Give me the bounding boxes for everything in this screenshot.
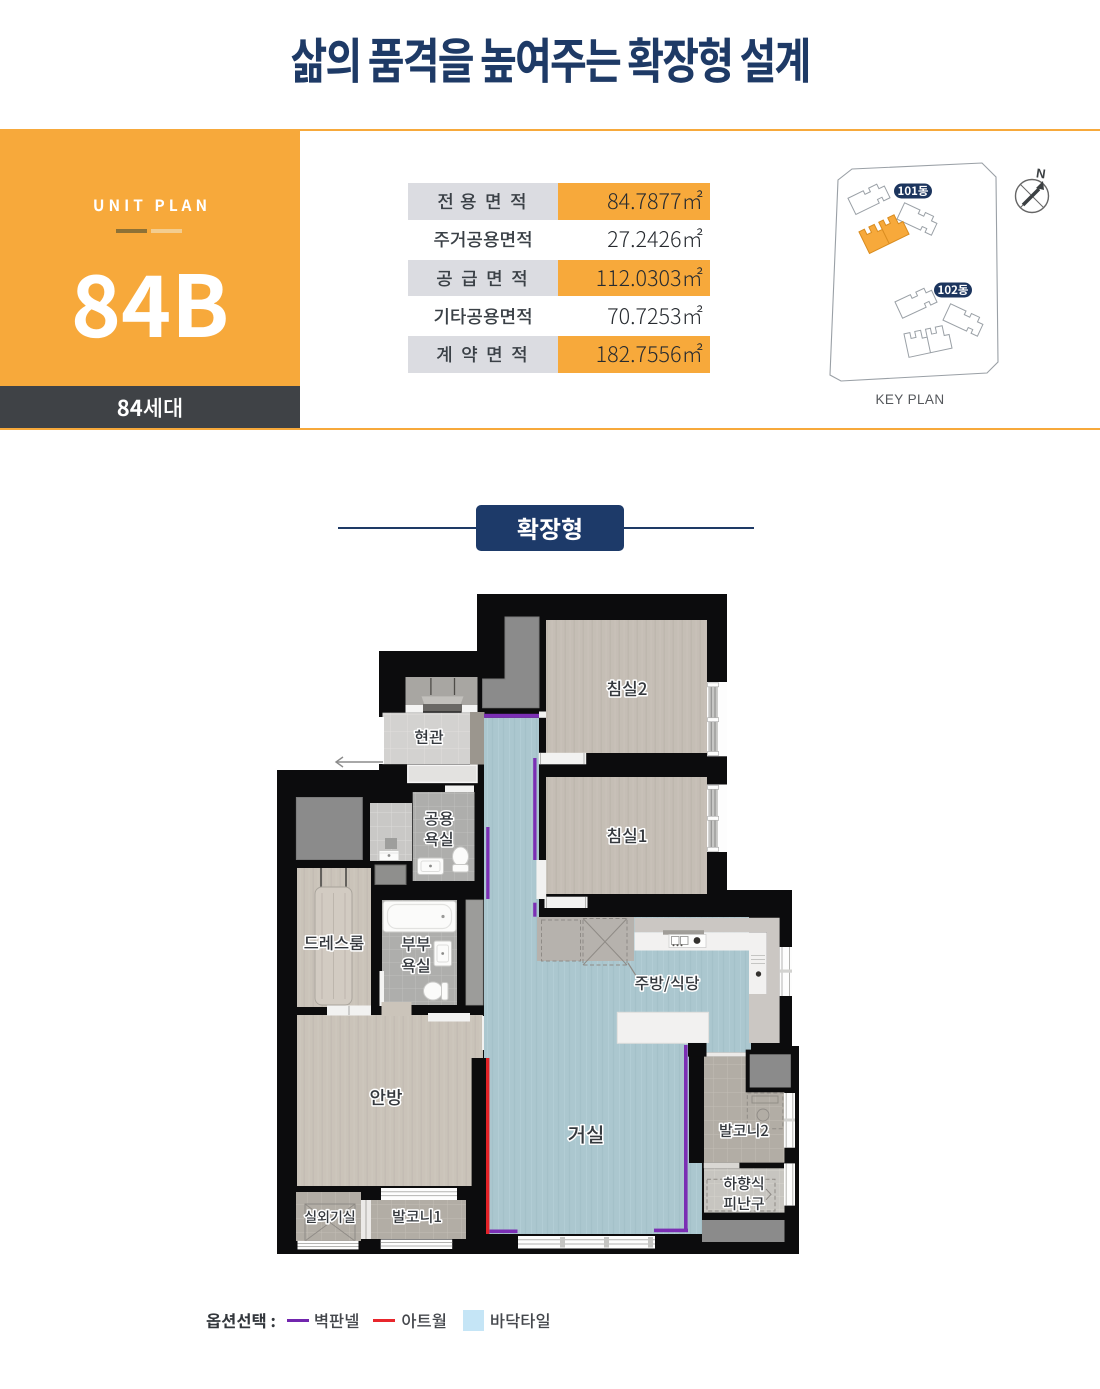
svg-text:발코니1: 발코니1 <box>392 1206 442 1227</box>
svg-text:N: N <box>1035 165 1046 181</box>
svg-text:피난구: 피난구 <box>723 1193 765 1214</box>
svg-text:침실2: 침실2 <box>607 675 648 700</box>
svg-text:욕실: 욕실 <box>424 826 453 850</box>
svg-text:하향식: 하향식 <box>723 1173 764 1194</box>
svg-text:101동: 101동 <box>898 183 929 199</box>
svg-text:주방/식당: 주방/식당 <box>634 970 699 994</box>
svg-text:드레스룸: 드레스룸 <box>304 930 365 954</box>
svg-text:현관: 현관 <box>414 724 444 748</box>
svg-text:102동: 102동 <box>938 282 969 298</box>
svg-text:실외기실: 실외기실 <box>304 1207 356 1227</box>
svg-text:거실: 거실 <box>568 1119 605 1148</box>
svg-text:발코니2: 발코니2 <box>719 1120 769 1141</box>
svg-text:부부: 부부 <box>401 931 430 955</box>
svg-text:KEY PLAN: KEY PLAN <box>876 392 945 407</box>
svg-text:침실1: 침실1 <box>607 822 648 847</box>
svg-text:욕실: 욕실 <box>401 953 430 977</box>
svg-text:안방: 안방 <box>369 1084 402 1110</box>
